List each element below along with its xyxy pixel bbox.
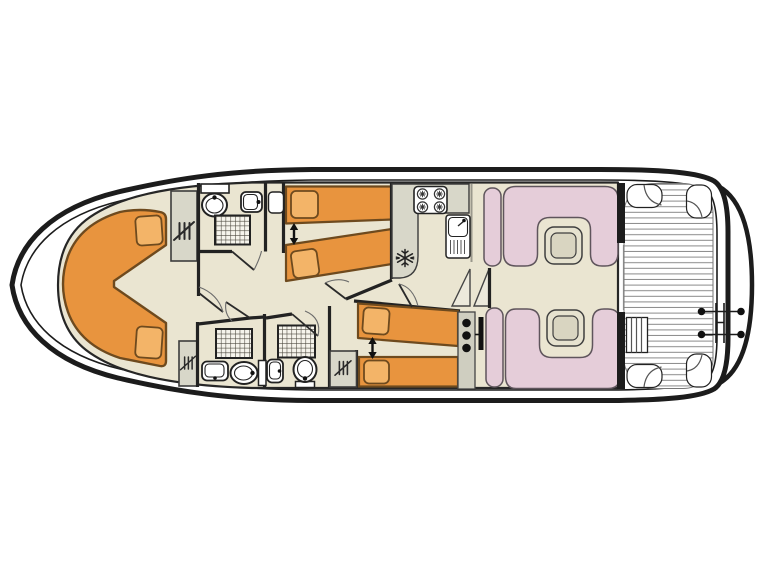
shower-tray-icon (215, 216, 250, 245)
console-knob (462, 344, 471, 353)
bulkhead-aft-bottom (617, 312, 625, 389)
dinette-table-top (545, 227, 582, 264)
console-knob (462, 319, 471, 328)
stove-burners-icon (414, 187, 447, 214)
deck-ladder-icon (627, 318, 648, 353)
pillow (362, 307, 390, 335)
boat-floor-plan (0, 0, 768, 576)
wardrobe-forward (171, 191, 197, 261)
toilet-icon (294, 357, 317, 388)
dinette-table-bottom (547, 310, 584, 346)
washbasin-icon (202, 362, 228, 381)
shower-tray-icon (216, 329, 252, 358)
toilet-icon (201, 184, 229, 217)
pillow (135, 215, 163, 246)
wardrobe-bow-lower (179, 341, 197, 386)
deck-bench-top-right (687, 185, 712, 218)
console-knob (462, 331, 471, 340)
bench-seat (484, 188, 501, 266)
floor-plan-canvas (0, 0, 768, 576)
aft-deck (624, 184, 713, 389)
sink-drainer-icon (446, 215, 470, 258)
toilet-icon (231, 361, 267, 386)
pillow (291, 191, 318, 218)
shower-tray-icon (278, 326, 315, 358)
deck-bench-bottom-right (687, 354, 712, 387)
washbasin-icon (241, 192, 262, 212)
bath-cabinet (269, 192, 284, 213)
washbasin-icon (267, 360, 283, 383)
wardrobe-aft (330, 351, 357, 387)
pillow (135, 326, 163, 359)
bulkhead-aft-top (617, 183, 625, 243)
console-bar (479, 317, 484, 350)
pillow (364, 361, 389, 384)
pillow (290, 248, 320, 278)
deck-bench-top-left (627, 185, 662, 208)
bench-seat (486, 308, 503, 387)
deck-bench-bottom-left (627, 365, 662, 388)
